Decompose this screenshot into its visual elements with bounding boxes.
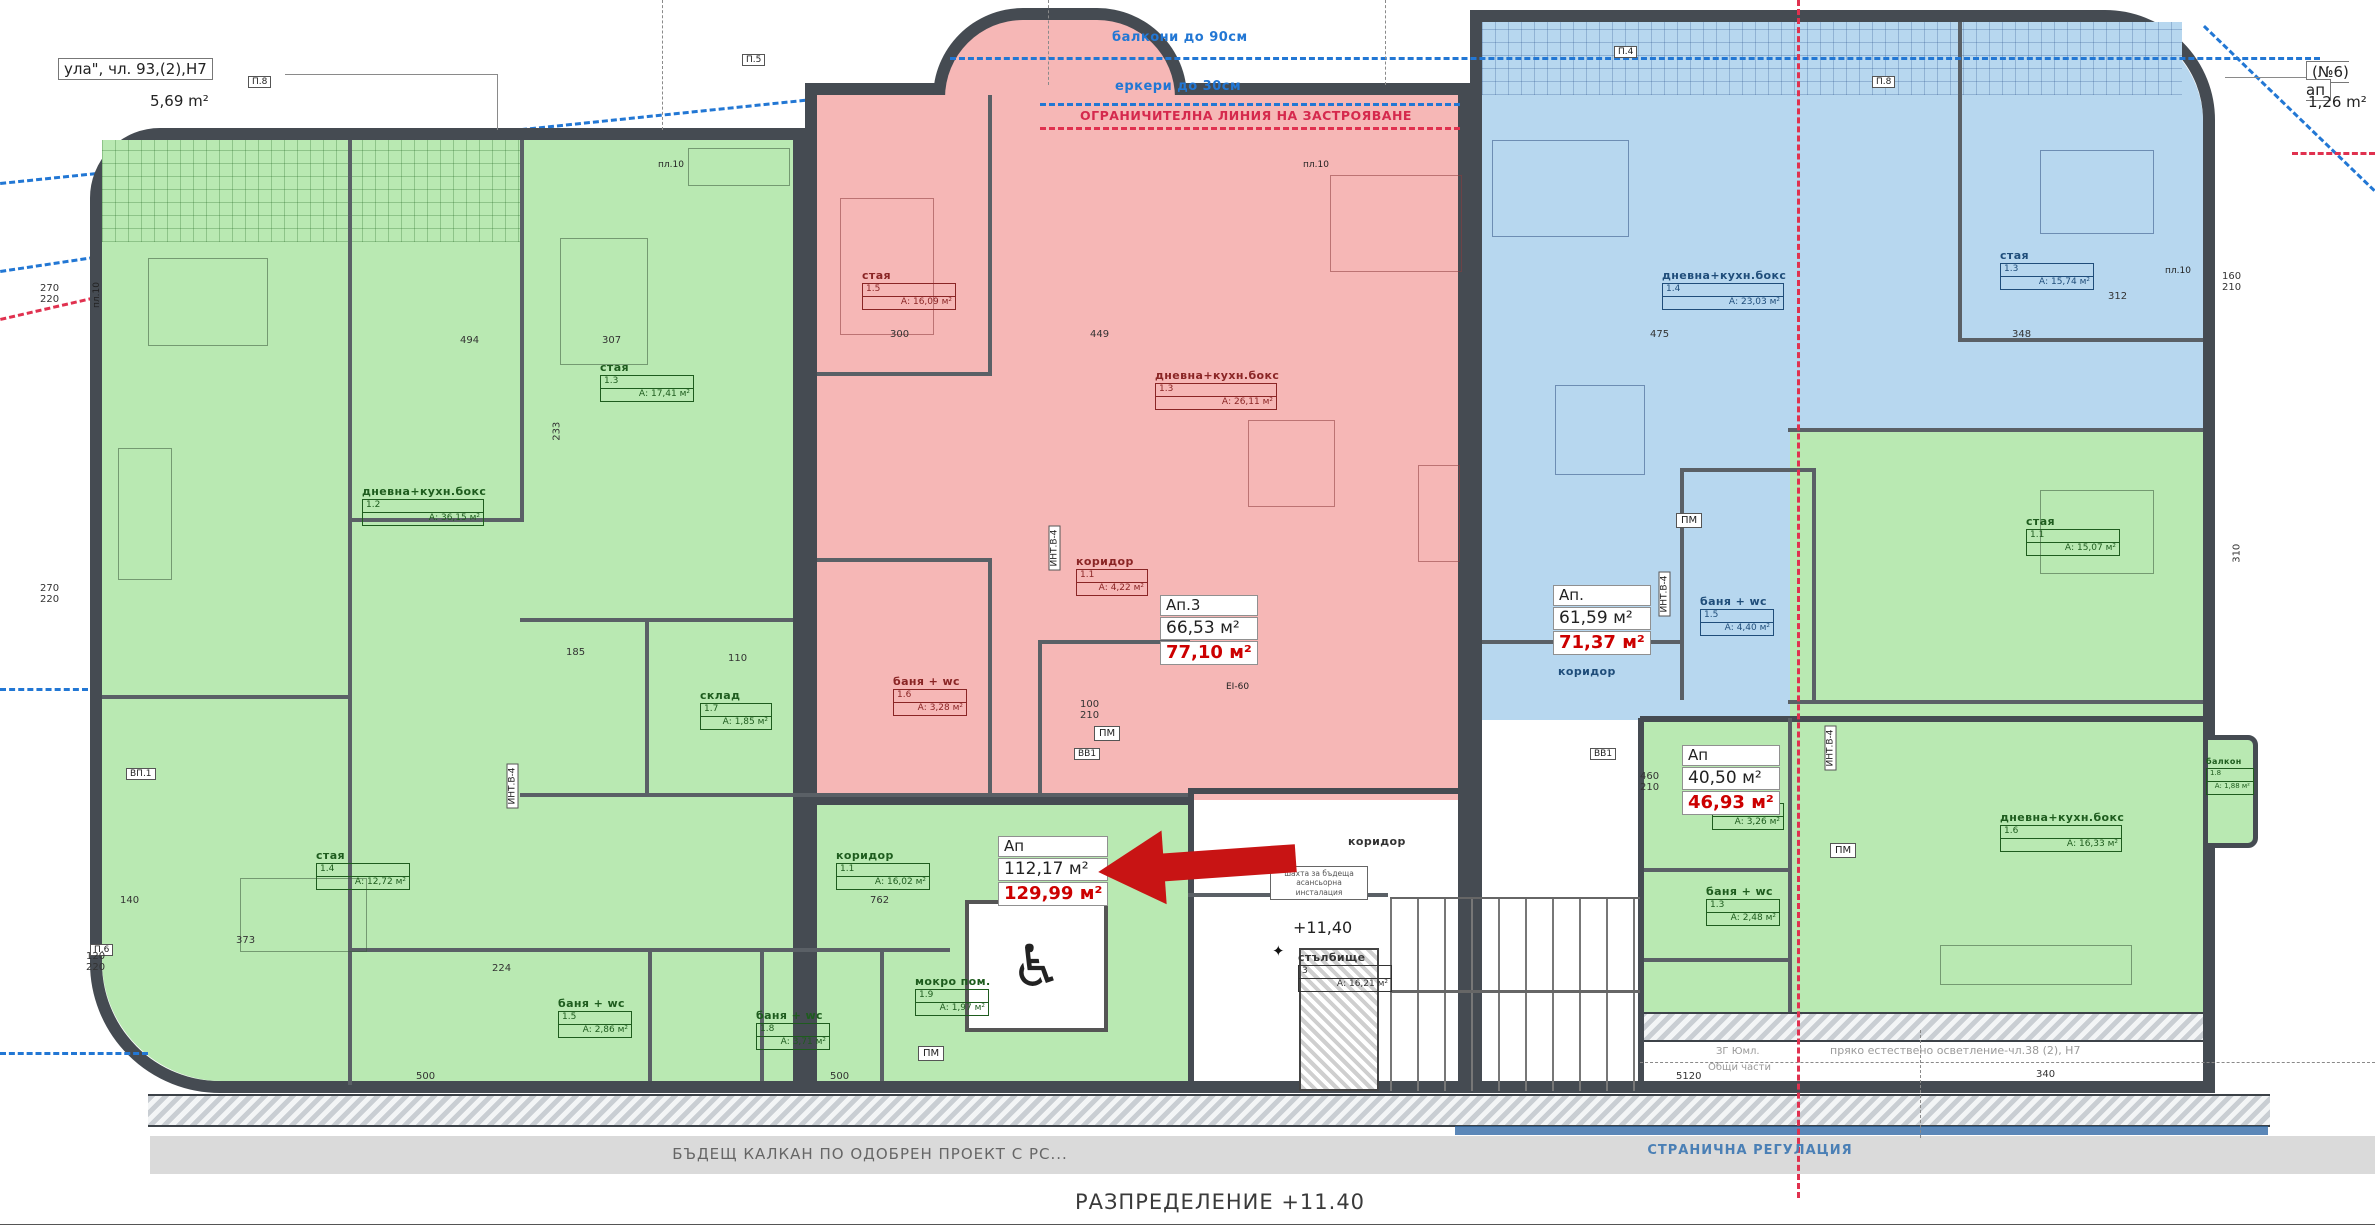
dimension-label: 140	[120, 896, 139, 907]
apartment-id: Ап.3	[1160, 595, 1258, 616]
leader-line	[2225, 77, 2306, 78]
riser-tag: ВВ1	[1590, 748, 1616, 760]
pointer-arrow	[1096, 821, 1301, 909]
partition	[988, 95, 992, 375]
room-label: стая1.3А: 17,41 м²	[600, 362, 694, 402]
apartment-area-total: 46,93 м²	[1682, 791, 1780, 815]
partition	[988, 558, 992, 793]
door-tag: ИНТ.В-4	[1825, 725, 1837, 770]
pm-box: ПМ	[918, 1046, 944, 1061]
dimension-label: 500	[830, 1072, 849, 1083]
room-label: дневна+кухн.бокс1.4А: 23,03 м²	[1662, 270, 1786, 310]
restriction-line-note: ОГРАНИЧИТЕЛНА ЛИНИЯ НА ЗАСТРОЯВАНЕ	[1080, 108, 1412, 123]
regulation-line-red	[1040, 127, 1460, 130]
slab-tag: пл.10	[658, 160, 684, 170]
dimension-label: 160 210	[2222, 272, 2241, 293]
regulation-note: ула", чл. 93,(2),Н7	[58, 58, 213, 80]
partition	[817, 372, 992, 376]
apartment-area: 61,59 м²	[1553, 607, 1651, 630]
wardrobe	[688, 148, 790, 186]
partition	[520, 140, 524, 522]
dimension-label: 762	[870, 896, 889, 907]
dimension-label: 348	[2012, 330, 2031, 341]
terrace-grid	[102, 140, 520, 242]
pm-box: ПМ	[1094, 726, 1120, 741]
dimension-label: 310	[2232, 544, 2243, 563]
room-label: мокро пом.1.9А: 1,97 м²	[915, 976, 991, 1016]
partition	[1188, 788, 1464, 794]
apartment-id: Ап	[998, 836, 1108, 857]
dimension-label: 100 210	[1080, 700, 1099, 721]
sofa	[1330, 175, 1462, 272]
dimension-label: 224	[492, 964, 511, 975]
partition	[102, 695, 352, 699]
dimension-label: 460 210	[1640, 772, 1659, 793]
partition	[520, 618, 793, 622]
room-label: дневна+кухн.бокс1.6А: 16,33 м²	[2000, 812, 2124, 852]
partition	[1788, 700, 2203, 704]
dimension-label: 494	[460, 336, 479, 347]
grid-line	[1385, 0, 1386, 85]
fire-rating-tag: EI-60	[1226, 682, 1249, 692]
apartment-label: Ап 40,50 м² 46,93 м²	[1682, 745, 1780, 816]
dimension-label: 340	[2036, 1070, 2055, 1081]
room-label: дневна+кухн.бокс1.3А: 26,11 м²	[1155, 370, 1279, 410]
room-label: коридор1.1А: 4,22 м²	[1076, 556, 1148, 596]
wheelchair-icon: ♿	[1011, 932, 1063, 1000]
dimension-label: 300	[890, 330, 909, 341]
arrow-head	[1096, 830, 1167, 908]
slab-tag: пл.10	[1303, 160, 1329, 170]
bed	[2040, 150, 2154, 234]
wall-tag: П.4	[1614, 46, 1637, 58]
apartment-id: Ап	[1682, 745, 1780, 766]
wall-tag: П.5	[742, 54, 765, 66]
bottom-strip	[150, 1136, 2375, 1174]
common-parts-note: ЗГ Юмл.	[1716, 1046, 1760, 1057]
partition	[1958, 22, 1962, 340]
room-label: стая1.5А: 16,09 м²	[862, 270, 956, 310]
apartment-label: Ап. 61,59 м² 71,37 м²	[1553, 585, 1651, 656]
regulation-line-red-vertical	[1797, 0, 1800, 1198]
apartment-label-target: Ап 112,17 м² 129,99 м²	[998, 836, 1108, 907]
partition	[348, 140, 352, 695]
bottom-wall-hatch-right	[1640, 1012, 2203, 1042]
room-label: баня + wc1.5А: 4,40 м²	[1700, 596, 1774, 636]
floor-plan: ♿ БЪДЕЩ КАЛКАН ПО ОДОБРЕН ПРОЕКТ С РС...…	[0, 0, 2375, 1232]
side-regulation-label: СТРАНИЧНА РЕГУЛАЦИЯ	[1600, 1143, 1900, 1158]
partition	[1788, 718, 1792, 1012]
slab-tag: пл.10	[92, 282, 102, 308]
dining-table	[1555, 385, 1645, 475]
dimension-label: 475	[1650, 330, 1669, 341]
partition	[817, 797, 1194, 805]
dimension-label: 449	[1090, 330, 1109, 341]
grid-line	[662, 0, 663, 130]
dimension-label: 120 220	[86, 952, 105, 973]
partition	[645, 618, 649, 793]
apartment-label: Ап.3 66,53 м² 77,10 м²	[1160, 595, 1258, 666]
top-left-note: ула", чл. 93,(2),Н7	[58, 60, 213, 78]
partition	[1038, 640, 1042, 793]
leader-line	[285, 74, 497, 75]
calcan-wall-band	[148, 1094, 2270, 1127]
room-label: баня + wc1.3А: 2,48 м²	[1706, 886, 1780, 926]
stair-rail	[1390, 990, 1640, 993]
pm-box: ПМ	[1830, 843, 1856, 858]
partition	[880, 948, 884, 1081]
room-label: баня + wc1.5А: 2,86 м²	[558, 998, 632, 1038]
stairs	[1390, 897, 1640, 1091]
dimension-label: 5120	[1676, 1072, 1701, 1083]
dimension-label: 270 220	[40, 584, 59, 605]
regulation-line-blue	[1040, 103, 1460, 106]
dimension-label: 185	[566, 648, 585, 659]
partition	[1958, 338, 2203, 342]
pm-box: ПМ	[1676, 513, 1702, 528]
room-label: баня + wc1.8А: 3,71 м²	[756, 1010, 830, 1050]
apartment-area-total: 129,99 м²	[998, 882, 1108, 906]
dining-table	[1248, 420, 1335, 507]
balcony-limit-note: балкони до 90см	[1112, 30, 1248, 45]
drawing-title: РАЗПРЕДЕЛЕНИЕ +11.40	[1020, 1190, 1420, 1214]
grid-line	[1048, 0, 1049, 85]
riser-tag: ВВ1	[1074, 748, 1100, 760]
natural-light-note: пряко естествено осветление-чл.38 (2), Н…	[1830, 1044, 2080, 1057]
dimension-label: 270 220	[40, 284, 59, 305]
top-right-area: 1,26 m²	[2308, 93, 2367, 111]
dimension-label: 110	[728, 654, 747, 665]
apartment-area: 112,17 м²	[998, 858, 1108, 881]
leader-line	[497, 74, 498, 130]
sofa	[118, 448, 172, 580]
dining-table	[148, 258, 268, 346]
bed	[840, 198, 934, 335]
regulation-line-blue	[0, 688, 88, 691]
partition	[1680, 468, 1815, 472]
regulation-line-red	[2292, 152, 2375, 155]
apartment-area-total: 71,37 м²	[1553, 631, 1651, 655]
kitchen-counter	[1418, 465, 1460, 562]
room-label: стая1.3А: 15,74 м²	[2000, 250, 2094, 290]
top-left-area: 5,69 m²	[150, 92, 209, 110]
dimension-label: 500	[416, 1072, 435, 1083]
future-calcan-note: БЪДЕЩ КАЛКАН ПО ОДОБРЕН ПРОЕКТ С РС...	[520, 1145, 1220, 1163]
kitchen-counter	[1940, 945, 2132, 985]
stair-label: стълбище3А: 16,21 м²	[1298, 952, 1392, 992]
room-label: коридор	[1558, 666, 1616, 679]
room-label: баня + wc1.6А: 3,28 м²	[893, 676, 967, 716]
dimension-label: 373	[236, 936, 255, 947]
wall-tag: ВП.1	[126, 768, 156, 780]
erker-limit-note: еркери до 30см	[1115, 79, 1241, 94]
partition	[1640, 868, 1790, 872]
apartment-id: Ап.	[1553, 585, 1651, 606]
room-label: склад1.7А: 1,85 м²	[700, 690, 772, 730]
partition	[1680, 468, 1684, 700]
door-tag: ИНТ.В-4	[507, 763, 519, 808]
title-rule	[0, 1224, 2375, 1225]
room-label: балкон1.8А: 1,88 м²	[2206, 758, 2254, 795]
regulation-line-blue	[0, 1052, 148, 1055]
arrow-tail	[1157, 844, 1297, 882]
dimension-label: 233	[552, 422, 563, 441]
slab-tag: пл.10	[2165, 266, 2191, 276]
partition	[1788, 428, 2203, 432]
partition	[648, 948, 652, 1081]
apartment-area-total: 77,10 м²	[1160, 641, 1258, 665]
level-label: +11,40	[1293, 918, 1352, 937]
room-label: коридор	[1348, 836, 1406, 849]
side-regulation-bar	[1455, 1126, 2268, 1135]
door-tag: ИНТ.В-4	[1049, 525, 1061, 570]
partition	[1812, 468, 1816, 700]
partition	[1640, 716, 2203, 722]
wall-tag: П.8	[1872, 76, 1895, 88]
partition	[817, 558, 992, 562]
partition	[1640, 958, 1790, 962]
room-label: стая1.4А: 12,72 м²	[316, 850, 410, 890]
room-label: стая1.1А: 15,07 м²	[2026, 516, 2120, 556]
sofa	[1492, 140, 1629, 237]
dimension-label: 307	[602, 336, 621, 347]
door-tag: ИНТ.В-4	[1659, 571, 1671, 616]
apartment-area: 66,53 м²	[1160, 617, 1258, 640]
dimension-label: 312	[2108, 292, 2127, 303]
room-label: дневна+кухн.бокс1.2А: 36,15 м²	[362, 486, 486, 526]
level-mark-icon: ✦	[1272, 942, 1285, 960]
common-parts-note: Общи части	[1708, 1062, 1771, 1073]
apartment-area: 40,50 м²	[1682, 767, 1780, 790]
wall-tag: П.8	[248, 76, 271, 88]
room-label: коридор1.1А: 16,02 м²	[836, 850, 930, 890]
